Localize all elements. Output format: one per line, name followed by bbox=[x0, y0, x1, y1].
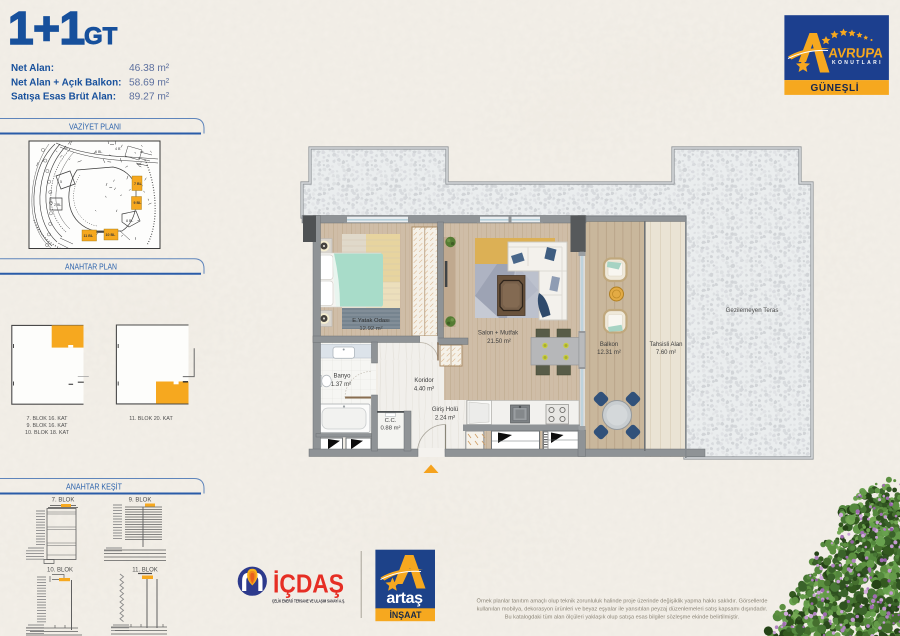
svg-text:58.69 m²: 58.69 m² bbox=[129, 78, 170, 89]
svg-text:21.50 m²: 21.50 m² bbox=[487, 339, 511, 345]
svg-text:Tahsisli Alan: Tahsisli Alan bbox=[649, 342, 682, 348]
svg-text:GÜNEŞLİ: GÜNEŞLİ bbox=[811, 81, 859, 94]
svg-text:11. BLOK 20. KAT: 11. BLOK 20. KAT bbox=[129, 416, 173, 422]
svg-text:Örnek planlar tanıtım amaçlı o: Örnek planlar tanıtım amaçlı olup teknik… bbox=[476, 598, 767, 605]
svg-text:Giriş Holü: Giriş Holü bbox=[432, 407, 458, 413]
svg-text:İÇDAŞ: İÇDAŞ bbox=[273, 569, 344, 599]
svg-text:kullanılan mobilya, dekorasyon: kullanılan mobilya, dekorasyon ürünleri … bbox=[477, 607, 768, 613]
svg-text:Koridor: Koridor bbox=[414, 378, 433, 384]
svg-text:GT: GT bbox=[84, 23, 118, 50]
svg-text:Satışa Esas Brüt Alan:: Satışa Esas Brüt Alan: bbox=[11, 92, 116, 103]
svg-text:12.31 m²: 12.31 m² bbox=[597, 350, 621, 356]
svg-text:4.40 m²: 4.40 m² bbox=[414, 387, 434, 393]
svg-text:ANAHTAR PLAN: ANAHTAR PLAN bbox=[65, 263, 117, 272]
svg-text:Net Alan:: Net Alan: bbox=[11, 63, 54, 74]
svg-text:Bu katalogdaki tüm alan ölçüle: Bu katalogdaki tüm alan ölçüleri yaklaşı… bbox=[505, 615, 740, 621]
svg-text:89.27 m²: 89.27 m² bbox=[129, 92, 170, 103]
svg-text:7. BLOK 16. KAT: 7. BLOK 16. KAT bbox=[27, 416, 69, 422]
svg-text:Balkon: Balkon bbox=[600, 342, 618, 348]
svg-text:ÇELİK ENERJİ TERSANE VE ULAŞIM: ÇELİK ENERJİ TERSANE VE ULAŞIM SANAYİ A.… bbox=[272, 598, 345, 603]
svg-text:7.60 m²: 7.60 m² bbox=[656, 350, 676, 356]
svg-text:Banyo: Banyo bbox=[333, 374, 351, 380]
svg-text:11. BLOK: 11. BLOK bbox=[132, 568, 158, 574]
svg-text:10. BLOK: 10. BLOK bbox=[47, 568, 73, 574]
svg-text:C.C.: C.C. bbox=[385, 418, 397, 424]
svg-text:2 BL: 2 BL bbox=[54, 203, 61, 207]
svg-text:ANAHTAR KEŞİT: ANAHTAR KEŞİT bbox=[66, 483, 122, 492]
svg-text:11 BL: 11 BL bbox=[84, 234, 94, 238]
svg-text:AVRUPA: AVRUPA bbox=[828, 46, 884, 61]
svg-text:7 BL: 7 BL bbox=[134, 182, 143, 186]
svg-text:7. BLOK: 7. BLOK bbox=[52, 498, 75, 504]
svg-text:İNŞAAT: İNŞAAT bbox=[390, 610, 422, 620]
svg-text:1+1: 1+1 bbox=[8, 2, 85, 54]
svg-text:6 BL: 6 BL bbox=[95, 150, 102, 154]
svg-text:10. BLOK 18. KAT: 10. BLOK 18. KAT bbox=[25, 430, 70, 436]
svg-text:KONUTLARI: KONUTLARI bbox=[832, 60, 881, 66]
svg-text:0.88 m²: 0.88 m² bbox=[381, 426, 401, 432]
svg-text:Net Alan + Açık Balkon:: Net Alan + Açık Balkon: bbox=[11, 78, 121, 89]
svg-text:46.38 m²: 46.38 m² bbox=[129, 63, 170, 74]
svg-text:4 B: 4 B bbox=[115, 147, 121, 151]
svg-text:8 BL: 8 BL bbox=[126, 219, 133, 223]
svg-text:Salon + Mutfak: Salon + Mutfak bbox=[478, 331, 519, 337]
svg-text:9 BL: 9 BL bbox=[134, 201, 143, 205]
svg-text:artaş: artaş bbox=[386, 590, 423, 607]
svg-text:VAZİYET PLANI: VAZİYET PLANI bbox=[69, 123, 121, 132]
svg-text:9. BLOK 16. KAT: 9. BLOK 16. KAT bbox=[27, 423, 69, 429]
svg-text:9. BLOK: 9. BLOK bbox=[129, 498, 152, 504]
svg-text:5: 5 bbox=[60, 180, 62, 184]
svg-text:E.Yatak Odası: E.Yatak Odası bbox=[352, 318, 390, 324]
svg-text:2.24 m²: 2.24 m² bbox=[435, 416, 455, 422]
svg-text:12.92 m²: 12.92 m² bbox=[359, 326, 382, 332]
svg-text:Gezilemeyen Teras: Gezilemeyen Teras bbox=[726, 307, 779, 314]
svg-text:10 BL: 10 BL bbox=[106, 233, 117, 237]
